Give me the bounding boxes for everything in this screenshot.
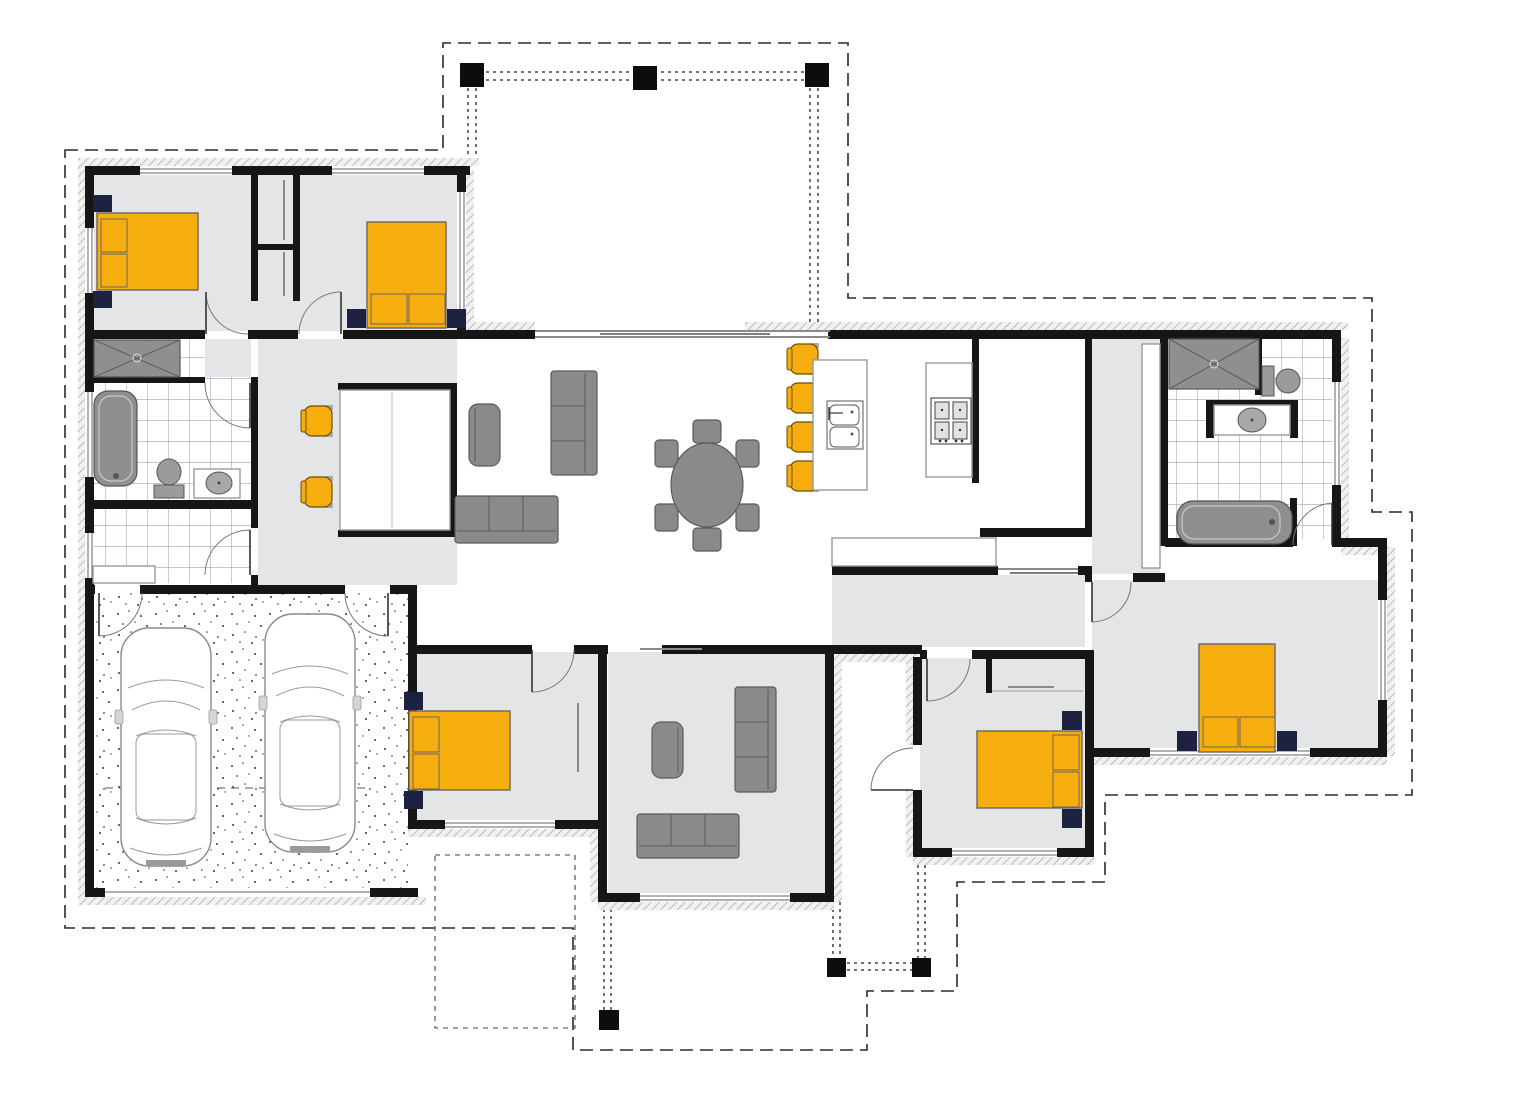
kitchen bbox=[787, 343, 996, 566]
window bbox=[457, 192, 466, 320]
living-room bbox=[455, 371, 597, 543]
cavity-slider bbox=[998, 569, 1078, 573]
desk bbox=[340, 390, 450, 530]
double-bed bbox=[97, 213, 198, 290]
sofa bbox=[735, 687, 776, 792]
dining-chair bbox=[736, 504, 759, 531]
nightstand bbox=[1277, 731, 1297, 751]
hall-bench bbox=[832, 538, 996, 566]
nightstand bbox=[1062, 809, 1082, 828]
bathtub bbox=[94, 391, 137, 486]
double-bed bbox=[367, 222, 446, 328]
toilet bbox=[154, 459, 184, 498]
desk-chair bbox=[301, 405, 333, 437]
cooktop bbox=[931, 398, 971, 444]
door-front-entry bbox=[871, 748, 913, 790]
walk-in-robe bbox=[1142, 344, 1160, 568]
window bbox=[445, 820, 555, 829]
pergola-post bbox=[460, 63, 484, 87]
pergola-post bbox=[633, 66, 657, 90]
garage-door bbox=[105, 888, 370, 897]
double-bed bbox=[977, 731, 1082, 808]
pergola-post bbox=[805, 63, 829, 87]
shower bbox=[1169, 339, 1259, 389]
window bbox=[140, 166, 232, 175]
sofa bbox=[551, 371, 597, 475]
nightstand bbox=[1177, 731, 1197, 751]
laundry bbox=[93, 566, 155, 583]
vanity bbox=[1214, 405, 1290, 435]
nightstand bbox=[404, 692, 423, 710]
desk-chair bbox=[301, 476, 333, 508]
oval-dining-table bbox=[671, 443, 743, 527]
window bbox=[85, 228, 94, 293]
armchair bbox=[652, 722, 683, 778]
window bbox=[1332, 382, 1341, 485]
kitchen-sink bbox=[827, 401, 863, 449]
nightstand bbox=[347, 309, 366, 328]
window bbox=[85, 392, 94, 477]
dining-chair bbox=[655, 504, 678, 531]
hall-south-floor bbox=[258, 537, 457, 585]
window bbox=[332, 166, 424, 175]
floor-plan-drawing bbox=[0, 0, 1536, 1097]
dining-chair bbox=[693, 528, 721, 551]
nightstand bbox=[93, 291, 112, 308]
double-bed bbox=[409, 711, 510, 790]
dining-chair bbox=[693, 420, 721, 443]
window bbox=[1378, 600, 1387, 700]
dining-area bbox=[655, 420, 759, 551]
bath-pocket-floor bbox=[205, 339, 251, 377]
rear-hall-floor bbox=[832, 575, 1085, 647]
porch-outline bbox=[435, 855, 575, 1028]
car-2 bbox=[259, 614, 361, 852]
sofa bbox=[637, 814, 739, 858]
nightstand bbox=[404, 791, 423, 809]
nightstand bbox=[93, 195, 112, 212]
dining-chair bbox=[655, 440, 678, 467]
bathtub bbox=[1177, 501, 1292, 544]
window bbox=[952, 848, 1057, 857]
laundry-bench bbox=[93, 566, 155, 583]
nightstand bbox=[447, 309, 466, 328]
vanity bbox=[194, 469, 240, 498]
sliding-door bbox=[535, 331, 830, 337]
pergola-post bbox=[599, 1010, 619, 1030]
shower bbox=[94, 340, 180, 377]
armchair bbox=[469, 404, 500, 466]
robe-shelving bbox=[1142, 344, 1160, 568]
sofa bbox=[455, 496, 558, 543]
pergola-post bbox=[827, 958, 846, 977]
double-bed bbox=[1199, 644, 1275, 752]
dining-chair bbox=[736, 440, 759, 467]
floor-plan-canvas bbox=[0, 0, 1536, 1097]
car-1 bbox=[115, 628, 217, 866]
pergola-post bbox=[912, 958, 931, 977]
window bbox=[640, 893, 790, 902]
nightstand bbox=[1062, 711, 1082, 730]
